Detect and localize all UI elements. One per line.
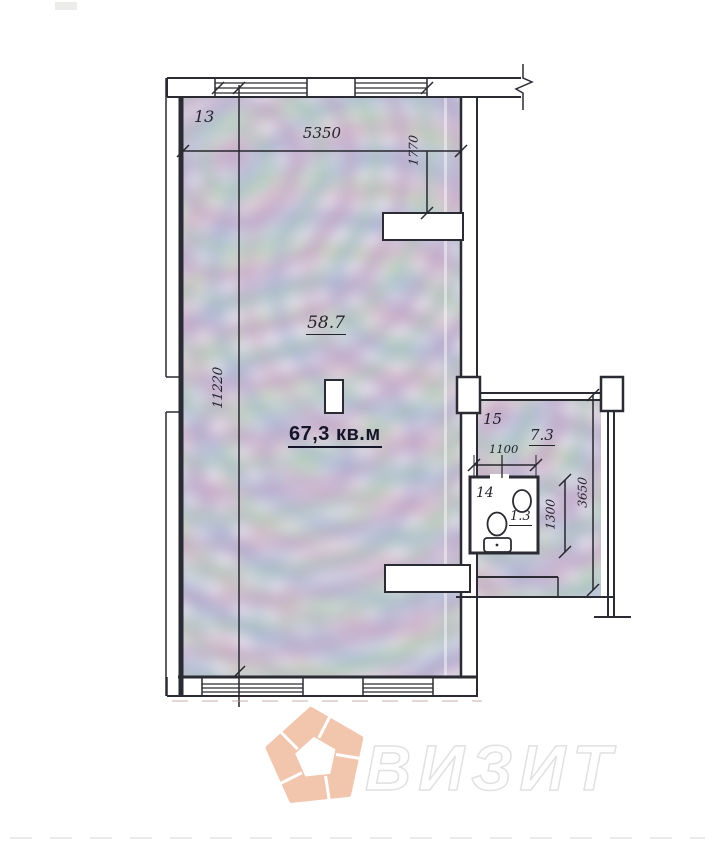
column-shaft [325, 380, 343, 413]
dim-label-3650: 3650 [577, 472, 590, 513]
pentagon-ring [265, 705, 367, 803]
room-number-15: 15 [483, 412, 502, 428]
total-area-value: 67,3 кв.м [288, 424, 382, 448]
room-number-14: 14 [476, 486, 494, 501]
area-label-58-7: 58.7 [300, 315, 352, 335]
total-area-label: 67,3 кв.м [288, 424, 382, 448]
scan-artifact-line [172, 700, 482, 702]
dimension-lines [177, 82, 599, 707]
toilet-dot [496, 544, 499, 547]
column-left [457, 377, 480, 413]
dim-label-1300: 1300 [545, 494, 558, 535]
dim-label-1100: 1100 [489, 443, 518, 455]
pentagon-logo-icon [264, 704, 372, 809]
scan-artifact [55, 2, 77, 10]
area-value: 1.3 [509, 510, 532, 526]
dim-label-1770: 1770 [408, 127, 421, 174]
dim-label-11220: 11220 [212, 359, 226, 416]
watermark-brand-text: ВИЗИТ [365, 731, 619, 805]
area-label-7-3: 7.3 [529, 428, 555, 446]
dim-label-5350: 5350 [296, 126, 348, 142]
walls [166, 64, 631, 697]
area-label-1-3: 1.3 [509, 510, 532, 526]
break-symbol [516, 64, 532, 110]
niche-right-bottom [385, 565, 470, 592]
column-right [601, 377, 623, 411]
agency-logo [260, 703, 372, 809]
area-value: 58.7 [306, 315, 346, 335]
floor-plan-scan: 13 5350 1770 11220 58.7 67,3 кв.м 15 7.3… [0, 0, 715, 843]
area-value: 7.3 [529, 428, 555, 446]
toilet-bowl-icon [488, 513, 507, 536]
scan-artifact-line [10, 837, 705, 839]
room-number-13: 13 [194, 109, 214, 126]
bathroom [470, 455, 538, 553]
